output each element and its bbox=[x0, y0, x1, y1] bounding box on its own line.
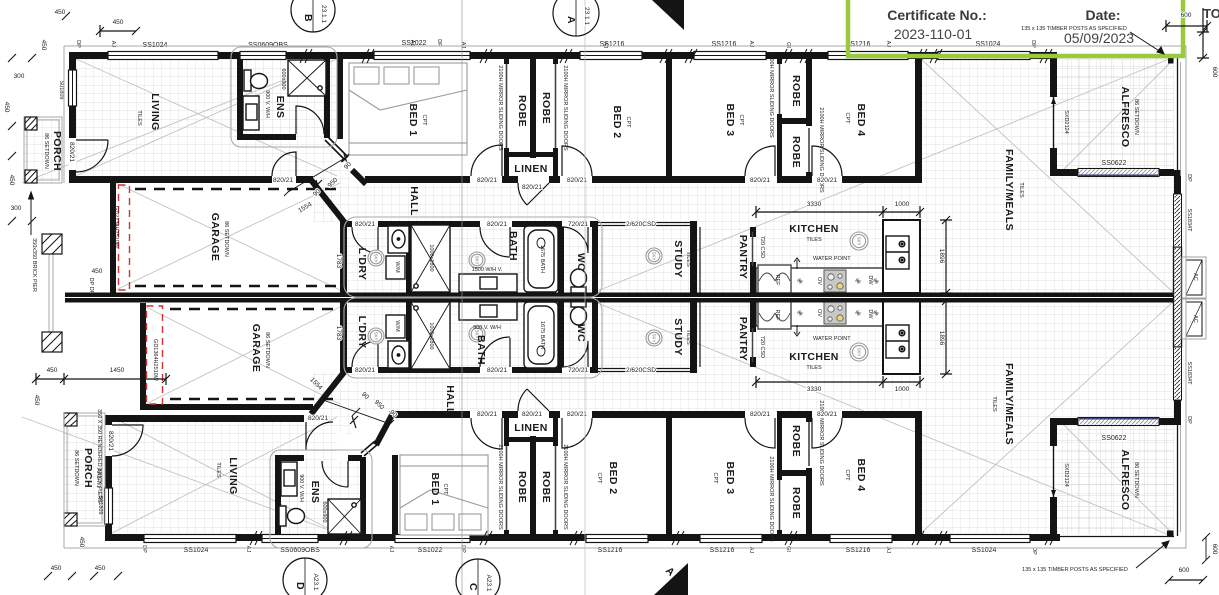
svg-text:720 CSD: 720 CSD bbox=[759, 236, 765, 258]
svg-text:AJ: AJ bbox=[602, 42, 608, 49]
svg-text:W/M: W/M bbox=[394, 261, 400, 273]
svg-text:AJ: AJ bbox=[245, 546, 251, 553]
svg-text:450: 450 bbox=[95, 565, 106, 572]
svg-text:SS0622: SS0622 bbox=[1102, 160, 1127, 167]
svg-text:AJ: AJ bbox=[409, 40, 415, 47]
svg-text:DW: DW bbox=[867, 275, 873, 285]
svg-text:DP: DP bbox=[460, 545, 466, 553]
svg-text:820/21: 820/21 bbox=[487, 367, 507, 374]
svg-text:D: D bbox=[294, 582, 306, 590]
svg-text:CPT: CPT bbox=[625, 117, 631, 129]
svg-text:SS1216: SS1216 bbox=[712, 41, 737, 48]
svg-text:SS1834T: SS1834T bbox=[1186, 209, 1192, 233]
svg-text:SXD2124: SXD2124 bbox=[1063, 463, 1069, 487]
svg-text:135 x 135 TIMBER POSTS AS SPEC: 135 x 135 TIMBER POSTS AS SPECIFIED bbox=[1022, 567, 1128, 573]
svg-text:BATH: BATH bbox=[475, 335, 487, 365]
svg-text:BATH: BATH bbox=[507, 231, 519, 261]
svg-text:ROBE: ROBE bbox=[790, 425, 802, 457]
svg-text:CPT: CPT bbox=[596, 473, 602, 485]
svg-text:TO: TO bbox=[1203, 6, 1219, 21]
svg-text:86 SETDOWN: 86 SETDOWN bbox=[73, 450, 79, 486]
svg-text:820/21: 820/21 bbox=[355, 367, 375, 374]
svg-text:DP: DP bbox=[1186, 416, 1192, 424]
svg-text:PORCH: PORCH bbox=[51, 131, 63, 171]
svg-text:L'DRY: L'DRY bbox=[356, 316, 368, 349]
svg-text:BED 3: BED 3 bbox=[724, 104, 736, 137]
svg-text:TILES: TILES bbox=[991, 396, 997, 412]
svg-text:SKY: SKY bbox=[857, 236, 862, 245]
svg-text:AJ: AJ bbox=[388, 546, 394, 553]
svg-text:ALFRESCO: ALFRESCO bbox=[1119, 450, 1131, 511]
svg-text:600: 600 bbox=[1181, 12, 1192, 19]
svg-text:KITCHEN: KITCHEN bbox=[789, 223, 838, 235]
svg-text:SKY: SKY bbox=[374, 253, 379, 262]
svg-text:720 CSD: 720 CSD bbox=[759, 336, 765, 358]
svg-text:STUDY: STUDY bbox=[672, 240, 684, 278]
svg-text:1896: 1896 bbox=[938, 331, 945, 346]
svg-text:PANTRY: PANTRY bbox=[737, 317, 749, 361]
svg-text:23.1.1: 23.1.1 bbox=[320, 5, 327, 23]
svg-text:300: 300 bbox=[11, 205, 22, 212]
svg-text:TILES: TILES bbox=[806, 365, 822, 371]
svg-text:86 SETDOWN: 86 SETDOWN bbox=[1133, 99, 1139, 135]
svg-text:2100H MIRROR SLIDING DOORS: 2100H MIRROR SLIDING DOORS bbox=[562, 444, 568, 530]
svg-text:SXD2124: SXD2124 bbox=[1063, 110, 1069, 134]
svg-text:BED 4: BED 4 bbox=[855, 459, 867, 492]
svg-text:FAMILY/MEALS: FAMILY/MEALS bbox=[1003, 149, 1015, 231]
svg-text:DP: DP bbox=[141, 545, 147, 553]
svg-text:OV: OV bbox=[816, 309, 822, 317]
svg-text:900 V. W/H: 900 V. W/H bbox=[264, 90, 270, 118]
svg-text:SKY: SKY bbox=[475, 329, 480, 338]
svg-text:450: 450 bbox=[40, 40, 47, 51]
svg-text:TILES: TILES bbox=[1018, 182, 1024, 198]
svg-text:SKY: SKY bbox=[857, 347, 862, 356]
svg-text:450: 450 bbox=[33, 395, 40, 406]
svg-text:1000x1800: 1000x1800 bbox=[428, 244, 434, 271]
svg-text:600: 600 bbox=[1211, 544, 1218, 555]
svg-text:1450: 1450 bbox=[110, 367, 125, 374]
svg-text:1500 W/H V.: 1500 W/H V. bbox=[472, 267, 503, 273]
svg-text:ROBE: ROBE bbox=[790, 75, 802, 107]
svg-text:2100H MIRROR SLIDING DOORS: 2100H MIRROR SLIDING DOORS bbox=[497, 444, 503, 530]
svg-text:820/21: 820/21 bbox=[750, 177, 770, 184]
svg-text:DP DP: DP DP bbox=[88, 278, 94, 295]
svg-text:WATER POINT: WATER POINT bbox=[813, 336, 851, 342]
svg-text:DP: DP bbox=[1186, 174, 1192, 182]
svg-text:820/21: 820/21 bbox=[273, 177, 293, 184]
svg-text:820/21: 820/21 bbox=[308, 415, 328, 422]
svg-text:SS0622: SS0622 bbox=[1102, 435, 1127, 442]
svg-text:ROBE: ROBE bbox=[790, 136, 802, 168]
svg-text:1783: 1783 bbox=[335, 326, 342, 341]
svg-text:DW: DW bbox=[867, 309, 873, 319]
svg-text:Date:: Date: bbox=[1085, 7, 1120, 23]
svg-text:W/M: W/M bbox=[394, 320, 400, 332]
svg-text:AC: AC bbox=[1192, 273, 1198, 281]
svg-text:AC: AC bbox=[1192, 315, 1198, 323]
svg-text:820/21: 820/21 bbox=[522, 184, 542, 191]
svg-text:450: 450 bbox=[3, 102, 10, 113]
svg-text:HALL: HALL bbox=[444, 385, 456, 415]
svg-text:SKY: SKY bbox=[652, 251, 657, 260]
svg-text:SS1834T: SS1834T bbox=[1186, 362, 1192, 386]
svg-text:REF: REF bbox=[774, 275, 780, 287]
svg-text:OV: OV bbox=[816, 277, 822, 285]
svg-text:GARAGE: GARAGE bbox=[250, 324, 262, 373]
svg-text:2100H MIRROR SLIDING DOORS: 2100H MIRROR SLIDING DOORS bbox=[768, 456, 774, 542]
svg-text:600x900: 600x900 bbox=[280, 68, 286, 89]
svg-text:S01809: S01809 bbox=[58, 81, 64, 100]
svg-text:3330: 3330 bbox=[807, 201, 822, 208]
svg-text:TILES: TILES bbox=[806, 237, 822, 243]
svg-text:REF: REF bbox=[774, 310, 780, 322]
svg-text:86 SETDOWN: 86 SETDOWN bbox=[223, 221, 229, 257]
svg-text:ROBE: ROBE bbox=[540, 92, 552, 124]
svg-text:1000: 1000 bbox=[895, 386, 910, 393]
svg-text:CPT: CPT bbox=[442, 484, 448, 496]
svg-text:ALFRESCO: ALFRESCO bbox=[1119, 87, 1131, 148]
svg-text:820/21: 820/21 bbox=[817, 177, 837, 184]
svg-text:PANTRY: PANTRY bbox=[737, 235, 749, 279]
svg-text:AJ: AJ bbox=[460, 42, 466, 49]
svg-text:1783: 1783 bbox=[335, 254, 342, 269]
svg-text:ROBE: ROBE bbox=[516, 95, 528, 127]
svg-text:350x350 BRICK PIER: 350x350 BRICK PIER bbox=[31, 238, 37, 292]
svg-text:1675 BATH: 1675 BATH bbox=[539, 245, 545, 273]
svg-text:A: A bbox=[565, 16, 577, 24]
svg-text:TILES: TILES bbox=[136, 110, 142, 126]
svg-text:820/21: 820/21 bbox=[567, 177, 587, 184]
svg-text:WATER POINT: WATER POINT bbox=[813, 256, 851, 262]
svg-text:ROBE: ROBE bbox=[516, 471, 528, 503]
svg-text:GD2134H2510W: GD2134H2510W bbox=[113, 206, 119, 249]
svg-text:BED 2: BED 2 bbox=[607, 462, 619, 495]
svg-text:450: 450 bbox=[92, 268, 103, 275]
svg-text:CPT: CPT bbox=[844, 113, 850, 125]
svg-text:820/21: 820/21 bbox=[487, 221, 507, 228]
svg-text:86 SETDOWN: 86 SETDOWN bbox=[264, 332, 270, 368]
svg-text:1896: 1896 bbox=[938, 249, 945, 264]
svg-text:3330: 3330 bbox=[807, 386, 822, 393]
svg-text:DP: DP bbox=[1030, 40, 1036, 48]
svg-text:LINEN: LINEN bbox=[514, 163, 548, 175]
svg-text:1000: 1000 bbox=[895, 201, 910, 208]
svg-text:820/21: 820/21 bbox=[750, 411, 770, 418]
svg-text:450: 450 bbox=[51, 565, 62, 572]
svg-text:SS1024: SS1024 bbox=[976, 41, 1001, 48]
svg-text:820/21: 820/21 bbox=[567, 411, 587, 418]
svg-text:SKY: SKY bbox=[374, 331, 379, 340]
svg-text:600: 600 bbox=[1179, 567, 1190, 574]
svg-text:820/21: 820/21 bbox=[68, 142, 75, 162]
svg-text:ENS: ENS bbox=[274, 96, 286, 119]
svg-text:CPT: CPT bbox=[421, 115, 427, 127]
svg-text:CPT: CPT bbox=[712, 473, 718, 485]
svg-text:350 X 350 RENDERED BRICK PIERS: 350 X 350 RENDERED BRICK PIERS bbox=[96, 409, 102, 503]
svg-text:450: 450 bbox=[47, 367, 58, 374]
svg-text:BED 2: BED 2 bbox=[611, 106, 623, 139]
svg-text:A23.1: A23.1 bbox=[312, 574, 319, 591]
svg-text:86 SETDOWN: 86 SETDOWN bbox=[43, 133, 49, 169]
svg-text:HALL: HALL bbox=[408, 186, 420, 216]
svg-text:450: 450 bbox=[78, 537, 85, 548]
svg-text:820/21: 820/21 bbox=[477, 177, 497, 184]
svg-text:KITCHEN: KITCHEN bbox=[789, 351, 838, 363]
svg-text:DP: DP bbox=[75, 40, 81, 48]
svg-text:SKY: SKY bbox=[475, 255, 480, 264]
svg-text:ROBE: ROBE bbox=[540, 471, 552, 503]
svg-text:BED 1: BED 1 bbox=[407, 104, 419, 137]
svg-text:05/09/2023: 05/09/2023 bbox=[1064, 30, 1134, 46]
svg-text:BED 3: BED 3 bbox=[724, 462, 736, 495]
svg-text:820/21: 820/21 bbox=[817, 411, 837, 418]
svg-text:Certificate No.:: Certificate No.: bbox=[887, 7, 987, 23]
svg-text:GI: GI bbox=[785, 546, 791, 552]
svg-text:450: 450 bbox=[55, 9, 66, 16]
svg-text:2100H MIRROR SLIDING DOORS: 2100H MIRROR SLIDING DOORS bbox=[497, 65, 503, 151]
svg-text:LINEN: LINEN bbox=[514, 422, 548, 434]
svg-text:CPT: CPT bbox=[738, 115, 744, 127]
svg-text:820/21: 820/21 bbox=[522, 411, 542, 418]
svg-text:BED 4: BED 4 bbox=[855, 104, 867, 137]
svg-text:LIVING: LIVING bbox=[149, 93, 161, 130]
svg-text:BED 1: BED 1 bbox=[429, 473, 441, 506]
svg-text:300: 300 bbox=[14, 73, 25, 80]
svg-text:TILES: TILES bbox=[215, 462, 221, 478]
svg-text:L'DRY: L'DRY bbox=[356, 248, 368, 281]
svg-text:1675 BATH: 1675 BATH bbox=[539, 321, 545, 349]
svg-text:600: 600 bbox=[1211, 67, 1218, 78]
svg-text:STUDY: STUDY bbox=[672, 318, 684, 356]
svg-text:GARAGE: GARAGE bbox=[209, 213, 221, 262]
svg-text:450: 450 bbox=[8, 175, 15, 186]
svg-text:2/620CSD: 2/620CSD bbox=[626, 221, 656, 228]
svg-text:GD1364H2510W: GD1364H2510W bbox=[152, 339, 158, 382]
svg-text:600x900: 600x900 bbox=[321, 501, 327, 522]
svg-text:PORCH: PORCH bbox=[82, 448, 94, 488]
svg-text:820/21: 820/21 bbox=[477, 411, 497, 418]
svg-text:2023-110-01: 2023-110-01 bbox=[894, 26, 973, 42]
svg-text:820/21: 820/21 bbox=[355, 221, 375, 228]
svg-text:A23.1: A23.1 bbox=[485, 575, 492, 592]
svg-text:B: B bbox=[302, 14, 314, 22]
svg-text:135 x 135 TIMBER POSTS AS SPEC: 135 x 135 TIMBER POSTS AS SPECIFIED bbox=[1021, 26, 1127, 32]
svg-text:820/21: 820/21 bbox=[107, 431, 114, 451]
svg-text:SKY: SKY bbox=[652, 333, 657, 342]
svg-text:GI: GI bbox=[785, 42, 791, 48]
svg-text:C: C bbox=[467, 583, 479, 591]
svg-text:ROBE: ROBE bbox=[790, 487, 802, 519]
svg-text:1000x1800: 1000x1800 bbox=[428, 322, 434, 349]
svg-text:86 SETDOWN: 86 SETDOWN bbox=[1133, 462, 1139, 498]
svg-text:2/620CSD: 2/620CSD bbox=[626, 367, 656, 374]
svg-text:23.1.1: 23.1.1 bbox=[583, 7, 590, 25]
svg-text:FAMILY/MEALS: FAMILY/MEALS bbox=[1003, 363, 1015, 445]
svg-text:2100H MIRROR SLIDING DOORS: 2100H MIRROR SLIDING DOORS bbox=[768, 52, 774, 138]
svg-text:LIVING: LIVING bbox=[227, 457, 239, 494]
svg-text:900 V. W/H: 900 V. W/H bbox=[298, 474, 304, 502]
svg-text:ENS: ENS bbox=[309, 481, 321, 504]
svg-text:TILES: TILES bbox=[685, 251, 691, 267]
svg-text:450: 450 bbox=[113, 19, 124, 26]
svg-text:2100H MIRROR SLIDING DOORS: 2100H MIRROR SLIDING DOORS bbox=[562, 65, 568, 151]
svg-text:TILES: TILES bbox=[685, 329, 691, 345]
svg-text:CPT: CPT bbox=[844, 470, 850, 482]
